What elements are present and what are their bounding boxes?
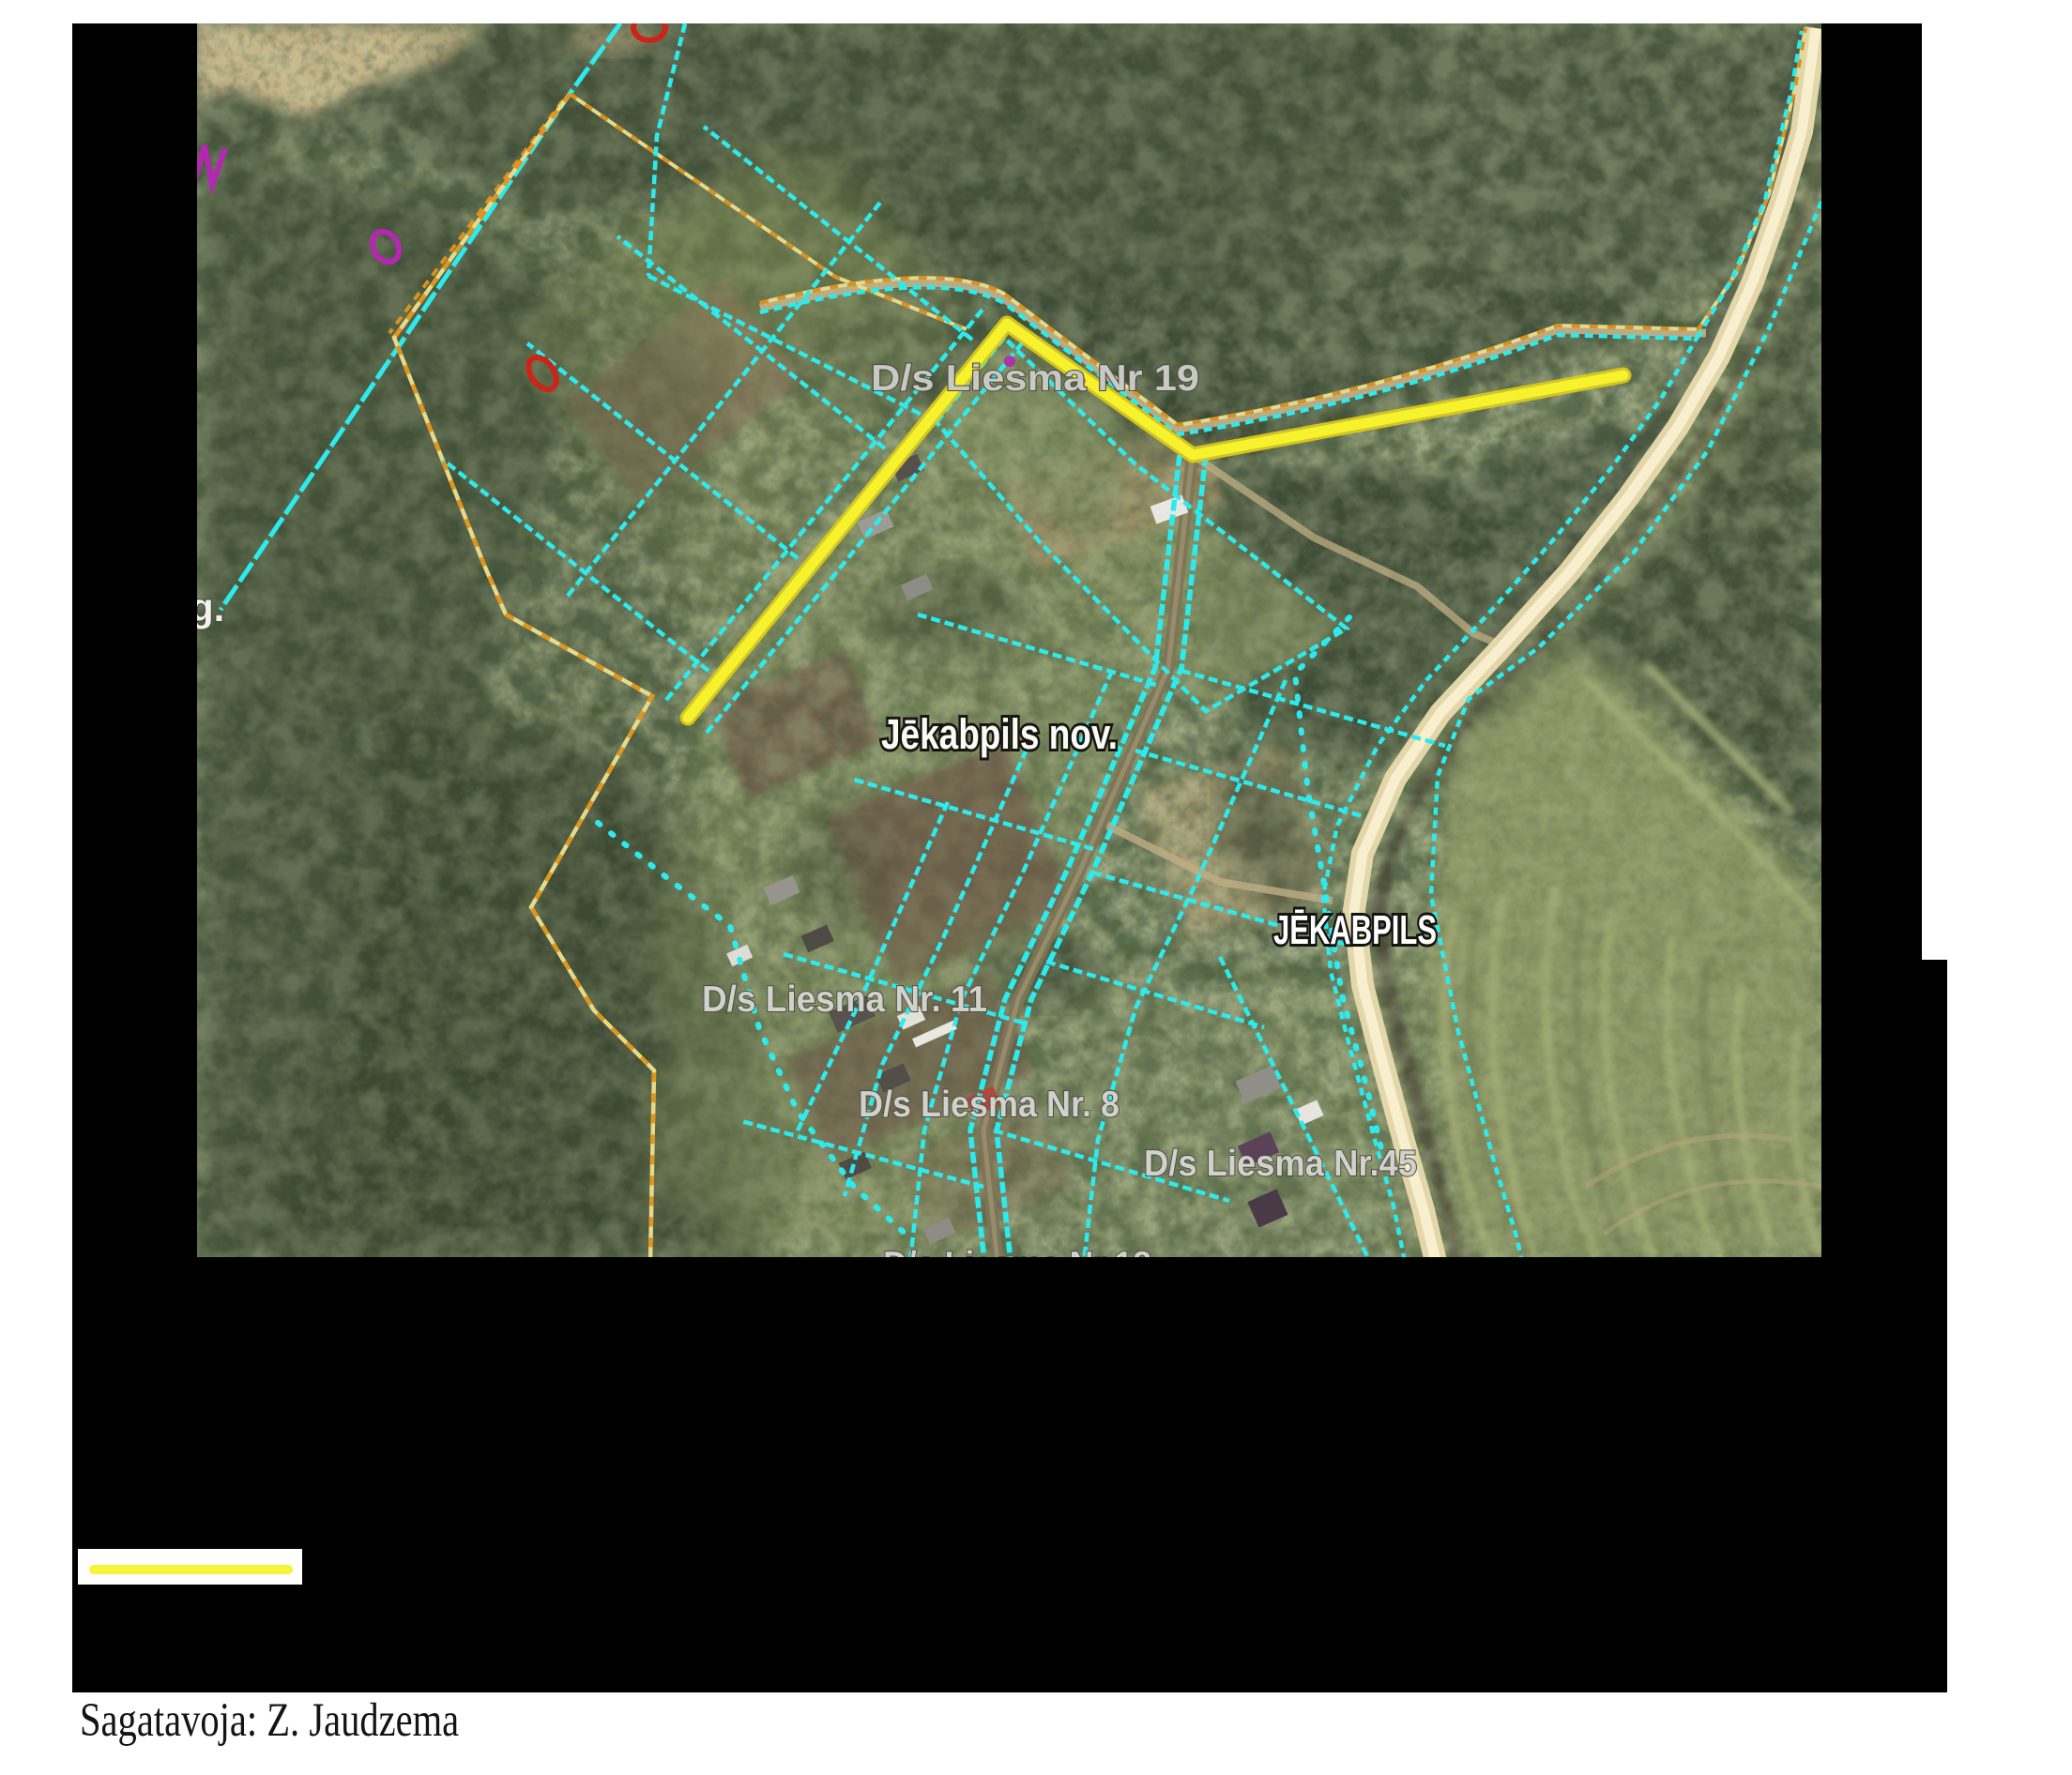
svg-text:Jēkabpils nov.: Jēkabpils nov. (881, 710, 1118, 758)
svg-text:D/s Liesma Nr.18: D/s Liesma Nr.18 (883, 1245, 1151, 1257)
svg-text:JĒKABPILS: JĒKABPILS (1273, 907, 1437, 953)
svg-text:g.: g. (197, 585, 224, 630)
svg-text:D/s Liesma Nr. 11: D/s Liesma Nr. 11 (702, 979, 987, 1020)
svg-text:D/s Liesma Nr.45: D/s Liesma Nr.45 (1144, 1144, 1417, 1184)
svg-text:D/s Liesma Nr. 8: D/s Liesma Nr. 8 (859, 1085, 1120, 1125)
svg-text:D/s Liesma Nr 19: D/s Liesma Nr 19 (871, 358, 1199, 399)
